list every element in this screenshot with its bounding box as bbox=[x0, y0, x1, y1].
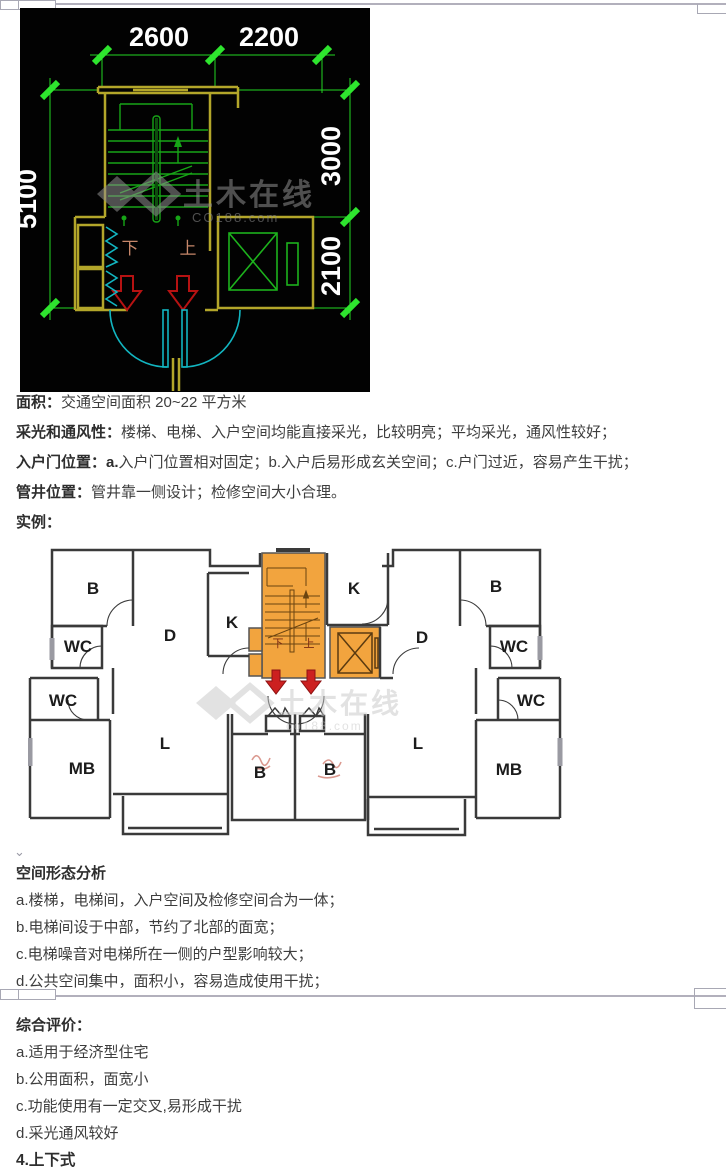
dim-left: 5100 bbox=[20, 169, 42, 229]
floorplan-drawing: 下 上 bbox=[28, 538, 703, 848]
page-break-right-mark bbox=[694, 988, 726, 1009]
spec-text-section: 面积：交通空间面积 20~22 平方米 采光和通风性：楼梯、电梯、入户空间均能直… bbox=[16, 388, 716, 538]
dim-right-1: 3000 bbox=[316, 126, 346, 186]
analysis-title: 空间形态分析 bbox=[16, 860, 716, 887]
evaluation-item: b.公用面积，面宽小 bbox=[16, 1066, 716, 1093]
room-label: D bbox=[164, 626, 176, 645]
room-label: WC bbox=[517, 691, 545, 710]
entry-door-line: 入户门位置：a.入户门位置相对固定；b.入户后易形成玄关空间；c.户门过近，容易… bbox=[16, 448, 716, 478]
stair-down-label: 下 bbox=[122, 239, 139, 258]
evaluation-item: a.适用于经济型住宅 bbox=[16, 1039, 716, 1066]
document-page: { "page": { "bg": "#ffffff" }, "colors":… bbox=[0, 0, 726, 1173]
dim-top-1: 2600 bbox=[129, 22, 189, 52]
core-down-label: 下 bbox=[273, 638, 284, 650]
page-break-line bbox=[0, 995, 726, 997]
room-label: WC bbox=[49, 691, 77, 710]
room-label: B bbox=[87, 579, 99, 598]
room-label: WC bbox=[500, 637, 528, 656]
next-section-heading: 4.上下式 bbox=[16, 1147, 716, 1174]
page-top-boundary-line bbox=[0, 3, 726, 5]
dim-top-2: 2200 bbox=[239, 22, 299, 52]
floorplan-example-figure[interactable]: 下 上 bbox=[28, 538, 703, 848]
cad-stair-core-figure[interactable]: 2600 2200 5100 3000 2100 bbox=[20, 8, 370, 392]
evaluation-title: 综合评价： bbox=[16, 1012, 716, 1039]
room-label: K bbox=[348, 579, 361, 598]
room-label: MB bbox=[69, 759, 95, 778]
room-label: D bbox=[416, 628, 428, 647]
analysis-item: c.电梯噪音对电梯所在一侧的户型影响较大； bbox=[16, 941, 716, 968]
analysis-section: 空间形态分析 a.楼梯，电梯间，入户空间及检修空间合为一体； b.电梯间设于中部… bbox=[16, 860, 716, 995]
svg-text:土木在线: 土木在线 bbox=[183, 179, 315, 212]
analysis-item: d.公共空间集中，面积小，容易造成使用干扰； bbox=[16, 968, 716, 995]
stair-up-label: 上 bbox=[180, 239, 197, 258]
area-line: 面积：交通空间面积 20~22 平方米 bbox=[16, 388, 716, 418]
svg-text:CO188.com: CO188.com bbox=[192, 210, 279, 225]
room-label: L bbox=[413, 734, 423, 753]
room-label: MB bbox=[496, 760, 522, 779]
room-label: B bbox=[254, 763, 266, 782]
evaluation-item: c.功能使用有一定交叉,易形成干扰 bbox=[16, 1093, 716, 1120]
cad-stair-core-drawing: 2600 2200 5100 3000 2100 bbox=[20, 8, 370, 392]
room-label: K bbox=[226, 613, 239, 632]
room-label: L bbox=[160, 734, 170, 753]
room-label: B bbox=[324, 760, 336, 779]
page-break-left-mark bbox=[0, 989, 56, 1000]
page-top-right-mark bbox=[697, 4, 726, 14]
core-up-label: 上 bbox=[304, 637, 315, 650]
svg-text:co188.com: co188.com bbox=[286, 719, 363, 733]
evaluation-item: d.采光通风较好 bbox=[16, 1120, 716, 1147]
evaluation-section: 综合评价： a.适用于经济型住宅 b.公用面积，面宽小 c.功能使用有一定交叉,… bbox=[16, 1012, 716, 1174]
example-label: 实例： bbox=[16, 508, 716, 538]
room-label: B bbox=[490, 577, 502, 596]
lighting-line: 采光和通风性：楼梯、电梯、入户空间均能直接采光，比较明亮；平均采光，通风性较好； bbox=[16, 418, 716, 448]
image-anchor-chevron-icon: ⌄ bbox=[14, 844, 25, 860]
svg-text:土木在线: 土木在线 bbox=[278, 688, 402, 719]
dim-right-2: 2100 bbox=[316, 236, 346, 296]
room-label: WC bbox=[64, 637, 92, 656]
analysis-item: a.楼梯，电梯间，入户空间及检修空间合为一体； bbox=[16, 887, 716, 914]
analysis-item: b.电梯间设于中部，节约了北部的面宽； bbox=[16, 914, 716, 941]
pipe-shaft-line: 管井位置：管井靠一侧设计；检修空间大小合理。 bbox=[16, 478, 716, 508]
